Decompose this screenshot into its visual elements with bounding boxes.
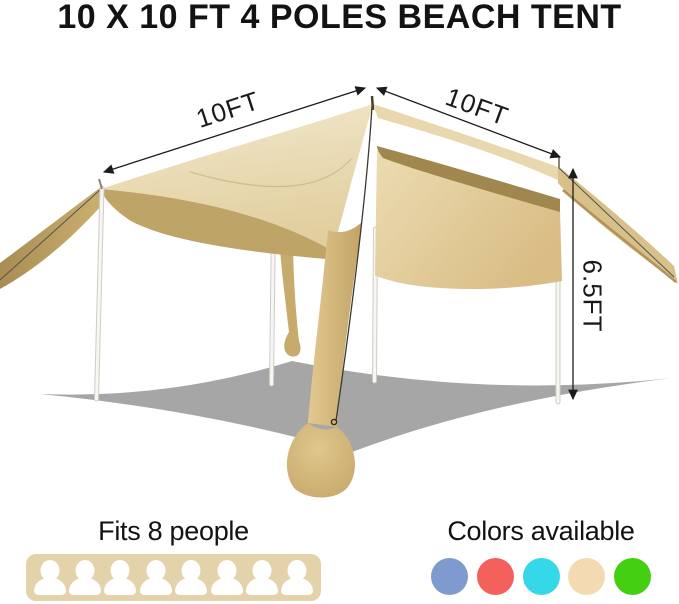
person-icon (281, 559, 314, 597)
ground-shadow (40, 361, 672, 452)
capacity-label: Fits 8 people (26, 514, 321, 548)
beach-tent-product-image: 10 X 10 FT 4 POLES BEACH TENT (0, 0, 679, 604)
person-icon (33, 559, 66, 597)
person-icon (104, 559, 137, 597)
person-torso (104, 578, 136, 595)
person-icon (210, 559, 243, 597)
left-guy-line (0, 189, 101, 280)
person-torso (140, 578, 172, 595)
color-swatch-blue (431, 558, 468, 595)
person-icon (246, 559, 279, 597)
sidewall-panel (375, 150, 562, 289)
person-torso (246, 578, 278, 595)
person-icon (68, 559, 101, 597)
dimension-label-height: 6.5FT (577, 260, 608, 333)
apex-tip (372, 96, 373, 110)
person-icon (139, 559, 172, 597)
colors-section: Colors available (431, 514, 651, 595)
person-torso (69, 578, 101, 595)
person-torso (175, 578, 207, 595)
person-torso (281, 578, 313, 595)
capacity-section: Fits 8 people (26, 514, 321, 601)
colors-available-label: Colors available (431, 514, 651, 548)
person-icon (175, 559, 208, 597)
pole-back-right (375, 229, 376, 381)
person-torso (211, 578, 243, 595)
color-swatch-green (614, 558, 651, 595)
capacity-box (26, 554, 321, 601)
color-swatch-beige (568, 558, 605, 595)
color-swatch-cyan (523, 558, 560, 595)
person-torso (34, 578, 66, 595)
color-swatch-coral (477, 558, 514, 595)
pole-front-left (97, 188, 103, 399)
swatch-row (431, 557, 651, 595)
